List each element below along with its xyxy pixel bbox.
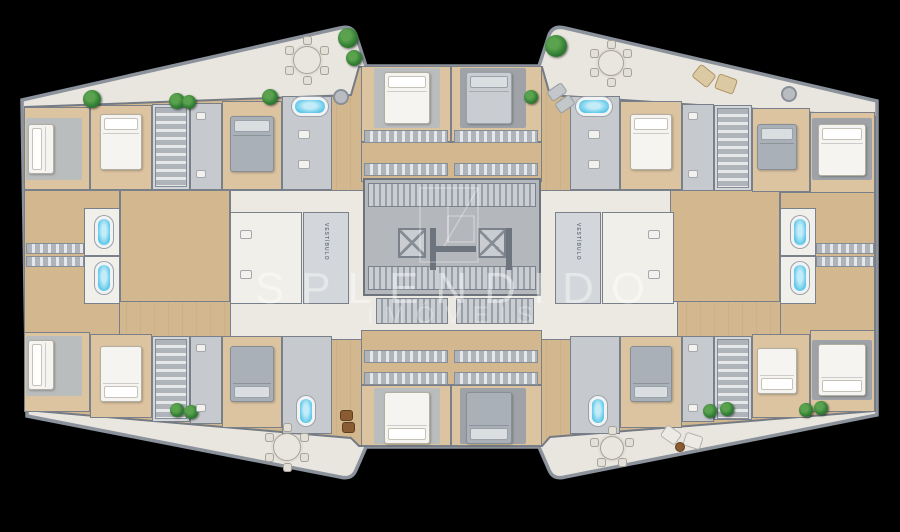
bed (28, 124, 54, 174)
chair (285, 46, 294, 55)
bathroom-fixture (298, 160, 310, 169)
plant-icon (720, 402, 734, 416)
bed-blanket-line (103, 133, 139, 134)
vestibule: VESTÍBULO (303, 212, 349, 304)
bed-blanket-line (45, 127, 46, 171)
bed-pillow (822, 380, 862, 392)
wardrobe-closet (717, 108, 749, 188)
staircase (368, 183, 536, 207)
chair (590, 68, 599, 77)
plant-icon (170, 403, 184, 417)
chair (607, 78, 616, 87)
bed-blanket-line (233, 135, 271, 136)
wardrobe-closet (26, 243, 84, 254)
bathroom-fixture (196, 404, 206, 412)
bed (757, 348, 797, 394)
wardrobe-closet (364, 350, 448, 363)
bed (466, 392, 512, 444)
bathroom-fixture (688, 170, 698, 178)
bed-pillow (634, 386, 668, 398)
bed-pillow (388, 76, 426, 88)
bed (100, 346, 142, 402)
bed (818, 124, 866, 176)
wardrobe-closet (364, 163, 448, 176)
chair (623, 49, 632, 58)
plant-icon (182, 95, 196, 109)
vestibule-label: VESTÍBULO (575, 223, 581, 261)
bathtub (576, 97, 612, 116)
plant-icon (83, 90, 101, 108)
chair (590, 49, 599, 58)
bed (466, 72, 512, 124)
bed-blanket-line (633, 133, 669, 134)
bathroom (230, 212, 302, 304)
lounge-chair (342, 422, 355, 433)
plant-icon (799, 403, 813, 417)
chair (597, 458, 606, 467)
bathroom-fixture (648, 270, 660, 279)
bed-pillow (32, 344, 42, 386)
bed-blanket-line (103, 383, 139, 384)
bathroom-fixture (196, 344, 206, 352)
wardrobe-closet (454, 130, 538, 143)
chair (320, 66, 329, 75)
bed-blanket-line (821, 143, 863, 144)
wardrobe-closet (816, 256, 874, 267)
bathroom-fixture (196, 170, 206, 178)
side-table (675, 442, 685, 452)
bed-pillow (234, 386, 270, 398)
chair (265, 433, 274, 442)
chair (285, 66, 294, 75)
elevator-shaft (478, 228, 506, 258)
chair (303, 36, 312, 45)
bed-blanket-line (760, 375, 794, 376)
bathtub (589, 396, 607, 426)
bed (230, 346, 274, 402)
bathroom (602, 212, 674, 304)
core-wall (436, 246, 476, 252)
bathroom-fixture (688, 344, 698, 352)
bed-blanket-line (387, 91, 427, 92)
bathroom-fixture (240, 270, 252, 279)
bathroom-fixture (588, 160, 600, 169)
wardrobe-closet (364, 130, 448, 143)
bed (384, 392, 430, 444)
dining-table (273, 433, 301, 461)
staircase (456, 298, 534, 324)
chair (283, 463, 292, 472)
chair (608, 426, 617, 435)
dining-table (293, 46, 321, 74)
vestibule-label: VESTÍBULO (323, 223, 329, 261)
bed-blanket-line (469, 425, 509, 426)
bed (28, 340, 54, 390)
bathroom-fixture (648, 230, 660, 239)
chair (590, 438, 599, 447)
wardrobe-closet (454, 372, 538, 385)
bathroom-fixture (298, 130, 310, 139)
column (333, 89, 349, 105)
vestibule: VESTÍBULO (555, 212, 601, 304)
bed (630, 346, 672, 402)
plant-icon (545, 35, 567, 57)
wardrobe-closet (26, 256, 84, 267)
bed-blanket-line (821, 377, 863, 378)
chair (265, 453, 274, 462)
closet-hall (361, 142, 542, 182)
chair (283, 423, 292, 432)
bed-pillow (104, 386, 138, 398)
bed-pillow (104, 118, 138, 130)
bed-pillow (234, 120, 270, 132)
wardrobe-closet (155, 107, 187, 187)
bathroom-fixture (688, 112, 698, 120)
dining-table (598, 50, 624, 76)
bed-blanket-line (45, 343, 46, 387)
bed (384, 72, 430, 124)
wardrobe-closet (364, 372, 448, 385)
bed-blanket-line (633, 383, 669, 384)
bathroom-fixture (588, 130, 600, 139)
bathtub (791, 216, 809, 248)
wardrobe-closet (816, 243, 874, 254)
bed-blanket-line (233, 383, 271, 384)
bathroom (682, 104, 714, 191)
plant-icon (262, 89, 278, 105)
staircase (376, 298, 448, 324)
chair (618, 458, 627, 467)
bed-pillow (470, 428, 508, 440)
bathroom-fixture (240, 230, 252, 239)
elevator-shaft (398, 228, 426, 258)
bed-pillow (822, 128, 862, 140)
bathroom-fixture (196, 112, 206, 120)
bathtub (95, 216, 113, 248)
bed-pillow (761, 128, 793, 140)
bathtub (791, 262, 809, 294)
lounge-chair (682, 432, 703, 451)
wardrobe-closet (454, 350, 538, 363)
bed-pillow (634, 118, 668, 130)
floorplan-stage: VESTÍBULOVESTÍBULO SPLENDIDO IMÓVEIS (0, 0, 900, 532)
column (781, 86, 797, 102)
bathroom (190, 103, 222, 190)
dining-table (600, 436, 624, 460)
bathtub (95, 262, 113, 294)
living-right (670, 190, 780, 302)
bed-blanket-line (387, 425, 427, 426)
plant-icon (346, 50, 362, 66)
chair (300, 453, 309, 462)
bed (230, 116, 274, 172)
plant-icon (703, 404, 717, 418)
bed-pillow (470, 76, 508, 88)
bed-blanket-line (760, 143, 794, 144)
lounge-chair (340, 410, 353, 421)
chair (300, 433, 309, 442)
bed-blanket-line (469, 91, 509, 92)
bed-pillow (388, 428, 426, 440)
bathroom-fixture (688, 404, 698, 412)
plant-icon (524, 90, 538, 104)
lounge-chair (691, 64, 717, 89)
plan-layer: VESTÍBULOVESTÍBULO (0, 0, 900, 532)
bed (100, 114, 142, 170)
chair (623, 68, 632, 77)
bed (818, 344, 866, 396)
living-left (120, 190, 230, 302)
bathtub (292, 97, 328, 116)
lounge-chair (714, 73, 738, 95)
bed (757, 124, 797, 170)
bed-pillow (32, 128, 42, 170)
wardrobe-closet (454, 163, 538, 176)
chair (320, 46, 329, 55)
chair (303, 76, 312, 85)
chair (625, 438, 634, 447)
plant-icon (338, 28, 358, 48)
chair (607, 40, 616, 49)
bathtub (297, 396, 315, 426)
plant-icon (814, 401, 828, 415)
bed-pillow (761, 378, 793, 390)
bed (630, 114, 672, 170)
core-wall (506, 228, 512, 270)
